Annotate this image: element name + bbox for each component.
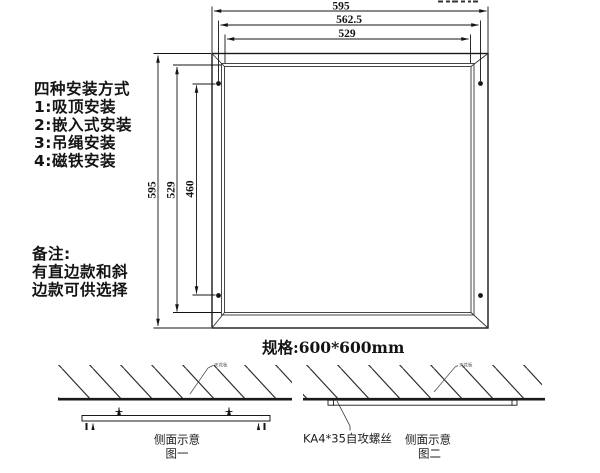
dim-label-height-inner: 529 <box>166 181 178 199</box>
clipped-text-remnant <box>438 1 478 3</box>
installation-methods-title: 四种安装方式 <box>34 80 132 98</box>
panel-outer-frame <box>212 54 488 329</box>
figure1-side-view: 天花板 侧面示意 图一 <box>58 362 292 461</box>
ceiling-label: 天花板 <box>459 362 473 369</box>
mounting-hole <box>478 81 483 86</box>
figure1-number: 图一 <box>166 447 189 461</box>
installation-method-item: 4:磁铁安装 <box>34 152 132 170</box>
mounting-holes <box>216 81 483 298</box>
dim-label-height-outer: 595 <box>147 181 159 199</box>
frame-mitre-joints <box>212 54 488 329</box>
mounting-hole <box>478 293 483 298</box>
panel-end-marks <box>87 423 265 430</box>
figure2-number: 图二 <box>418 447 441 461</box>
dim-label-width-holes: 562.5 <box>336 14 362 26</box>
panel-bezel-line-outer <box>222 64 475 316</box>
dim-label-width-outer: 595 <box>332 1 350 13</box>
figure2-caption: 侧面示意 <box>405 433 451 447</box>
mounting-hole <box>216 81 221 86</box>
installation-methods-block: 四种安装方式 1:吸顶安装 2:嵌入式安装 3:吊绳安装 4:磁铁安装 <box>34 80 132 170</box>
note-line: 有直边款和斜 <box>32 263 128 281</box>
panel-side-profile <box>328 400 517 405</box>
note-line: 边款可供选择 <box>32 281 128 299</box>
figure1-caption: 侧面示意 <box>154 433 200 447</box>
installation-method-item: 1:吸顶安装 <box>34 98 132 116</box>
spec-label: 规格:600*600mm <box>262 336 404 358</box>
installation-method-item: 3:吊绳安装 <box>34 134 132 152</box>
note-block: 备注: 有直边款和斜 边款可供选择 <box>32 245 128 299</box>
dim-label-height-holes: 460 <box>185 180 197 198</box>
panel-plan-view <box>212 54 488 329</box>
mounting-hole <box>216 293 221 298</box>
panel-light-installation-drawing: 595 562.5 529 595 529 460 <box>0 0 600 473</box>
ceiling-hatch <box>303 365 542 399</box>
dim-label-width-inner: 529 <box>338 28 356 40</box>
note-title: 备注: <box>32 245 128 263</box>
ceiling-hatch <box>58 365 292 399</box>
mount-direction-arrows <box>116 408 233 416</box>
installation-method-item: 2:嵌入式安装 <box>34 116 132 134</box>
panel-bezel-line-inner <box>225 67 472 313</box>
figure2-side-view: KA4*35自攻螺丝 天花板 侧面示意 图二 <box>303 362 545 461</box>
screw-label: KA4*35自攻螺丝 <box>303 432 392 446</box>
drawing-linework: 595 562.5 529 595 529 460 <box>0 0 600 473</box>
panel-side-profile <box>82 416 270 422</box>
ceiling-label: 天花板 <box>214 362 228 369</box>
